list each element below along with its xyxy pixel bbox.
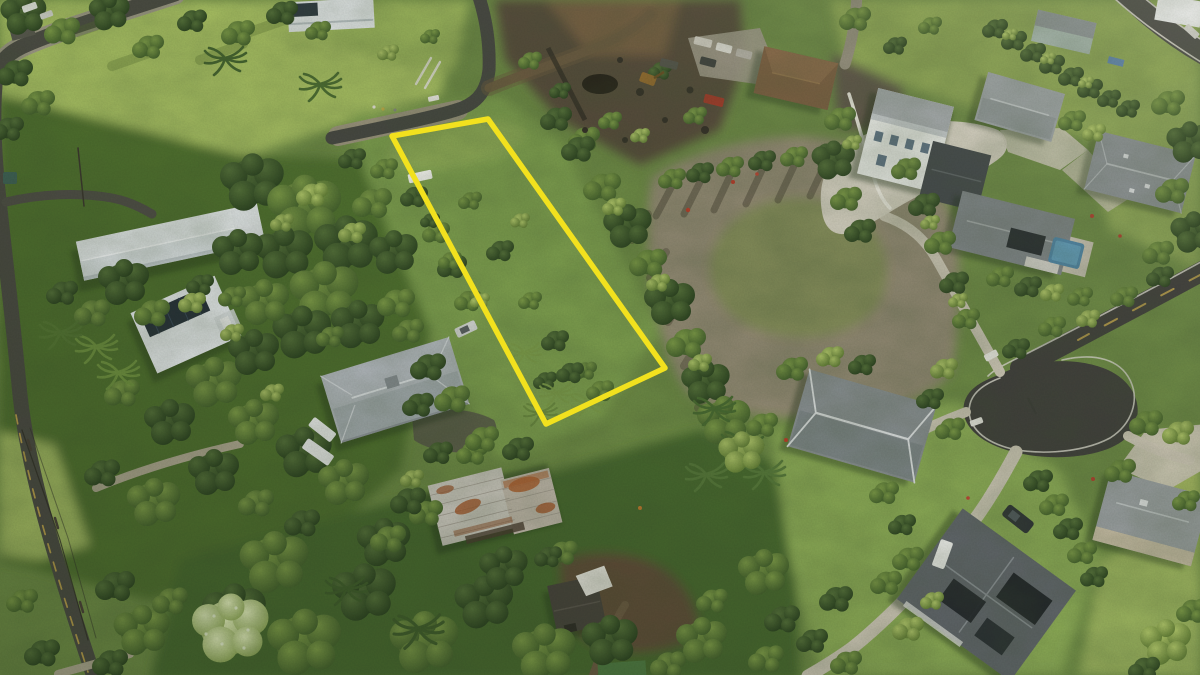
aerial-photo	[0, 0, 1200, 675]
aerial-photo-canvas	[0, 0, 1200, 675]
sunlight-overlay	[0, 0, 1200, 675]
